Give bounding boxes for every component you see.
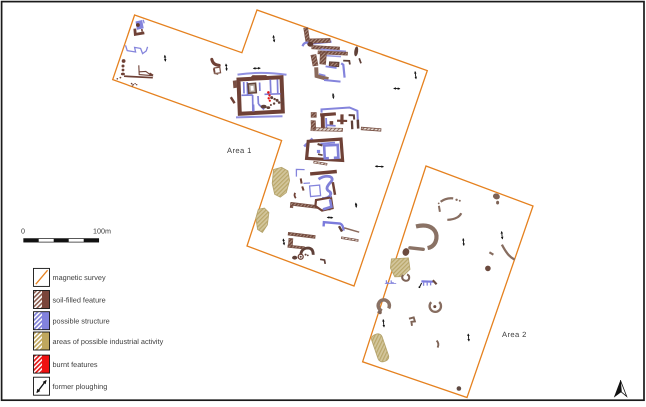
svg-text:areas of possible industrial a: areas of possible industrial activity [53, 337, 164, 346]
svg-text:former ploughing: former ploughing [53, 382, 108, 391]
svg-text:burnt features: burnt features [53, 360, 98, 369]
svg-text:soil-filled feature: soil-filled feature [53, 295, 106, 304]
svg-text:100m: 100m [93, 227, 111, 236]
svg-text:magnetic survey: magnetic survey [53, 273, 106, 282]
svg-text:0: 0 [21, 227, 25, 236]
svg-text:possible structure: possible structure [53, 317, 110, 326]
svg-text:Area 2: Area 2 [502, 330, 527, 339]
svg-text:Area 1: Area 1 [227, 146, 252, 155]
